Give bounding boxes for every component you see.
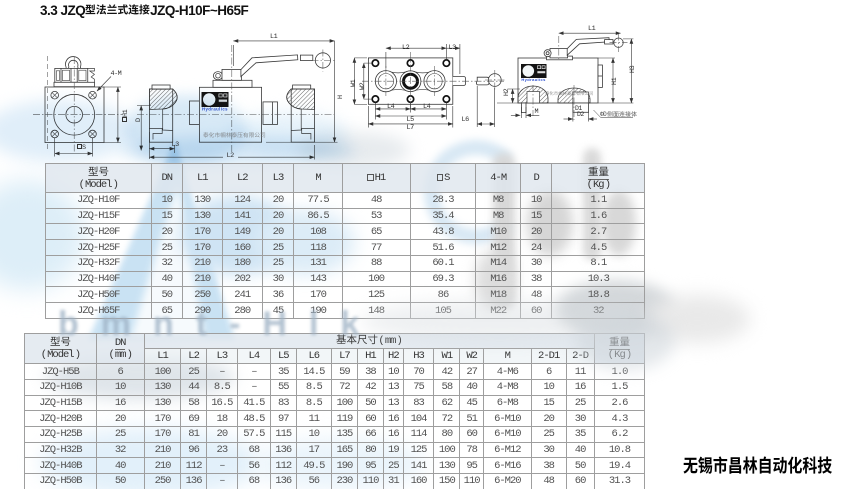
svg-text:Hydraulics: Hydraulics — [521, 77, 546, 82]
